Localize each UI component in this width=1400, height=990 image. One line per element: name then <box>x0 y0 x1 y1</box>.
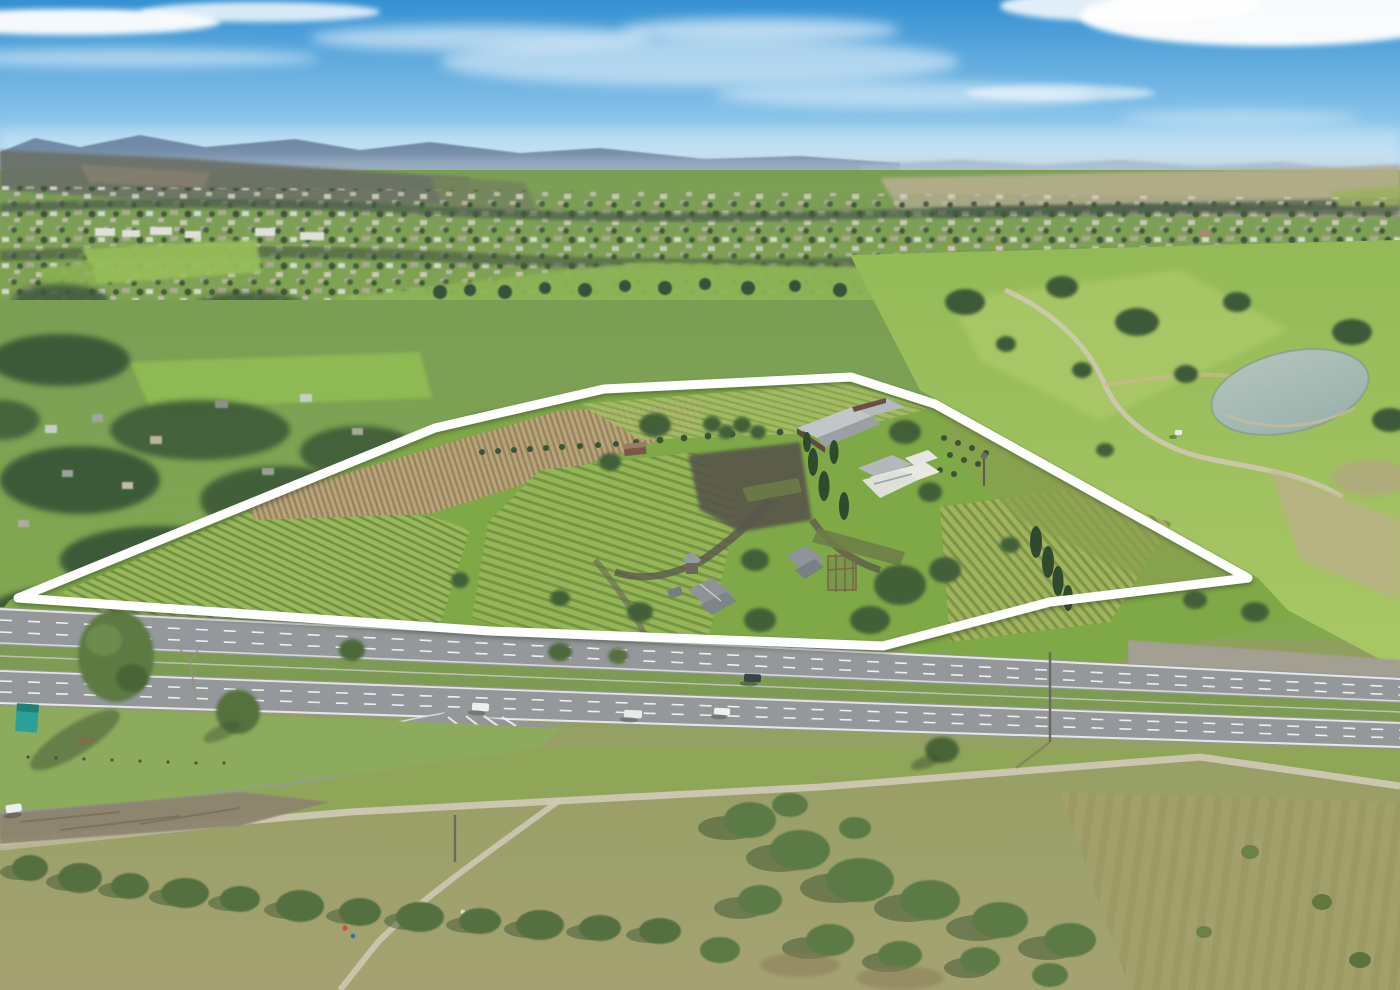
aerial-photo <box>0 0 1400 990</box>
field-shed <box>623 442 646 456</box>
dumpster <box>15 703 39 732</box>
aerial-photo-canvas <box>0 0 1400 990</box>
frame-structure <box>828 553 856 592</box>
